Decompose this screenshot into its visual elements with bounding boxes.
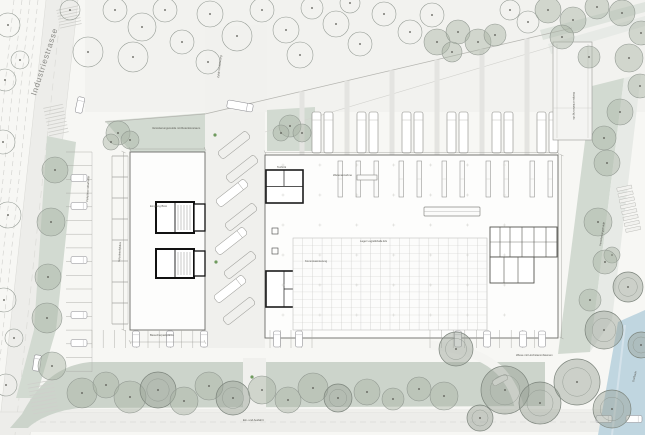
tree: [35, 264, 61, 290]
car-body: [484, 331, 491, 347]
docked-truck: [459, 112, 468, 153]
tree-trunk: [477, 41, 479, 43]
tree-trunk: [588, 56, 590, 58]
tree: [439, 332, 473, 366]
tree: [407, 377, 431, 401]
tree-trunk: [5, 384, 7, 386]
buildings-layer: [112, 152, 558, 338]
tree-trunk: [597, 221, 599, 223]
site-plan-canvas: Industriestrasse Versickerungsmulde mit …: [0, 0, 645, 435]
annotation-label: Besucherparkplätze: [150, 333, 174, 337]
tree-trunk: [51, 365, 53, 367]
tree-trunk: [455, 348, 457, 350]
tree-trunk: [2, 141, 4, 143]
tree-trunk: [409, 31, 411, 33]
tree-trunk: [117, 132, 119, 134]
tree-trunk: [183, 400, 185, 402]
tree-trunk: [479, 417, 481, 419]
planting-dot: [214, 260, 217, 263]
tree-trunk: [164, 9, 166, 11]
tree: [103, 134, 119, 150]
tree: [550, 25, 574, 49]
canopy-mullion: [345, 81, 350, 155]
tree-trunk: [603, 137, 605, 139]
tree: [535, 0, 561, 23]
docked-truck: [312, 112, 321, 153]
docked-truck: [324, 112, 333, 153]
car-body: [274, 331, 281, 347]
tree-trunk: [436, 41, 438, 43]
office-core-south: [156, 249, 205, 278]
docked-truck: [447, 112, 456, 153]
tree-trunk: [359, 43, 361, 45]
tree-trunk: [261, 389, 263, 391]
tree: [273, 125, 289, 141]
tree-trunk: [7, 24, 9, 26]
parked-car: [520, 331, 527, 347]
planting-dot: [213, 133, 216, 136]
parked-car: [484, 331, 491, 347]
annotation-label: Lager Logistikhalle EG: [360, 239, 387, 243]
tree-trunk: [572, 19, 574, 21]
parked-car: [539, 331, 546, 347]
canopy-mullion: [480, 49, 485, 155]
parked-car: [201, 331, 208, 347]
tree: [42, 157, 68, 183]
tree: [324, 384, 352, 412]
tree-trunk: [494, 34, 496, 36]
tree-trunk: [209, 13, 211, 15]
parked-car: [71, 175, 87, 182]
central-yard: [205, 112, 265, 348]
tree-trunk: [621, 12, 623, 14]
tree: [593, 390, 631, 428]
tree-trunk: [114, 9, 116, 11]
tree: [607, 99, 633, 125]
annotation-label: Rampe Anlieferung UG: [572, 92, 576, 120]
tree: [275, 387, 301, 413]
tree-trunk: [335, 23, 337, 25]
tree-trunk: [561, 36, 563, 38]
tree-trunk: [287, 399, 289, 401]
car-body: [71, 312, 87, 319]
tree-trunk: [129, 139, 131, 141]
tree-trunk: [69, 9, 71, 11]
docked-truck: [504, 112, 513, 153]
tree-trunk: [312, 387, 314, 389]
car-body: [71, 257, 87, 264]
tree-trunk: [181, 41, 183, 43]
canopy-mullion: [525, 39, 530, 155]
docked-truck: [357, 112, 366, 153]
tree: [579, 289, 601, 311]
docked-truck: [537, 112, 546, 153]
tree-trunk: [105, 384, 107, 386]
tree-trunk: [19, 59, 21, 61]
parked-car: [133, 331, 140, 347]
office-building: [130, 152, 205, 330]
tree-trunk: [640, 344, 642, 346]
tree-trunk: [141, 26, 143, 28]
tree: [584, 208, 612, 236]
tree-trunk: [589, 299, 591, 301]
tree-trunk: [50, 221, 52, 223]
annotation-label: Wiese mit Hochstammbäumen: [516, 353, 553, 357]
tree: [121, 131, 139, 149]
tree-trunk: [639, 85, 641, 87]
tree: [592, 126, 616, 150]
tree-trunk: [418, 388, 420, 390]
parked-car: [71, 312, 87, 319]
tree-trunk: [504, 389, 506, 391]
tree-trunk: [539, 402, 541, 404]
tree-trunk: [129, 396, 131, 398]
tree-trunk: [337, 397, 339, 399]
tree-trunk: [596, 6, 598, 8]
tree-trunk: [289, 125, 291, 127]
tree: [484, 24, 506, 46]
tree-trunk: [451, 51, 453, 53]
tree: [354, 379, 380, 405]
annotation-label: Ein- und Ausfahrt: [243, 418, 264, 422]
tree-trunk: [311, 7, 313, 9]
tree-trunk: [110, 141, 112, 143]
tree-trunk: [628, 57, 630, 59]
north-entry-drive: [205, 24, 267, 114]
tree: [216, 381, 250, 415]
tree: [67, 378, 97, 408]
parked-car: [296, 331, 303, 347]
docked-truck: [369, 112, 378, 153]
car-body: [520, 331, 527, 347]
tree: [593, 250, 617, 274]
tree-trunk: [157, 389, 159, 391]
tree-trunk: [383, 13, 385, 15]
annotation-label: Empfang Büro: [150, 204, 168, 208]
tree-trunk: [547, 9, 549, 11]
tree-trunk: [54, 169, 56, 171]
tree-trunk: [527, 21, 529, 23]
tree-trunk: [261, 9, 263, 11]
docked-truck: [492, 112, 501, 153]
canopy-mullion: [390, 70, 395, 155]
tree-trunk: [619, 111, 621, 113]
tree-trunk: [603, 329, 605, 331]
tree-trunk: [13, 337, 15, 339]
tree: [554, 359, 600, 405]
car-body: [296, 331, 303, 347]
tree: [615, 44, 643, 72]
parked-car: [71, 257, 87, 264]
tree-trunk: [4, 79, 6, 81]
tree-trunk: [7, 214, 9, 216]
car-body: [71, 175, 87, 182]
tree: [32, 303, 62, 333]
tree: [585, 311, 623, 349]
tree-trunk: [457, 31, 459, 33]
tree-trunk: [285, 29, 287, 31]
tree-trunk: [208, 385, 210, 387]
annotation-label: Warenannahme: [333, 173, 353, 177]
tree-trunk: [47, 276, 49, 278]
tree-trunk: [81, 392, 83, 394]
parked-car: [71, 340, 87, 347]
tree: [293, 124, 311, 142]
parked-car: [71, 203, 87, 210]
tree-trunk: [301, 132, 303, 134]
car-body: [71, 340, 87, 347]
tree-trunk: [443, 395, 445, 397]
tree-trunk: [627, 286, 629, 288]
car-body: [133, 331, 140, 347]
planting-dot: [250, 375, 253, 378]
annotation-label: Technik: [277, 165, 287, 169]
docked-truck: [414, 112, 423, 153]
tree-trunk: [604, 261, 606, 263]
tree-trunk: [611, 408, 613, 410]
site-plan-svg: Industriestrasse Versickerungsmulde mit …: [0, 0, 645, 435]
tree-trunk: [207, 61, 209, 63]
tree: [442, 42, 462, 62]
tree-canopy: [535, 0, 561, 23]
tree-trunk: [87, 51, 89, 53]
tree: [37, 208, 65, 236]
parked-car: [274, 331, 281, 347]
tree-trunk: [392, 398, 394, 400]
tree: [298, 373, 328, 403]
pallet-rack-grid: [293, 238, 487, 330]
tree: [430, 382, 458, 410]
tree-trunk: [431, 14, 433, 16]
tree-trunk: [349, 2, 351, 4]
car-body: [201, 331, 208, 347]
docked-truck: [402, 112, 411, 153]
tree: [467, 405, 493, 431]
tree-trunk: [236, 35, 238, 37]
tree-trunk: [280, 132, 282, 134]
small-rack: [357, 175, 377, 180]
tree-trunk: [232, 397, 234, 399]
tree-trunk: [576, 381, 578, 383]
tree-trunk: [132, 56, 134, 58]
annotation-label: Kommissionierung: [305, 259, 328, 263]
tree-trunk: [299, 54, 301, 56]
tree-trunk: [46, 317, 48, 319]
car-body: [71, 203, 87, 210]
tree-trunk: [509, 9, 511, 11]
tree: [170, 387, 198, 415]
tree-trunk: [606, 162, 608, 164]
tree: [613, 272, 643, 302]
annotation-label: Versickerungsmulde mit Retentionsraum: [152, 126, 201, 130]
hall-room-northwest: [266, 170, 303, 203]
canopy-mullion: [435, 60, 440, 155]
tree-trunk: [3, 299, 5, 301]
tree: [578, 46, 600, 68]
car-body: [539, 331, 546, 347]
tree: [594, 150, 620, 176]
tree: [609, 0, 635, 26]
tree: [382, 388, 404, 410]
tree-trunk: [366, 391, 368, 393]
tree-trunk: [640, 32, 642, 34]
tree: [38, 352, 66, 380]
tree: [248, 376, 276, 404]
